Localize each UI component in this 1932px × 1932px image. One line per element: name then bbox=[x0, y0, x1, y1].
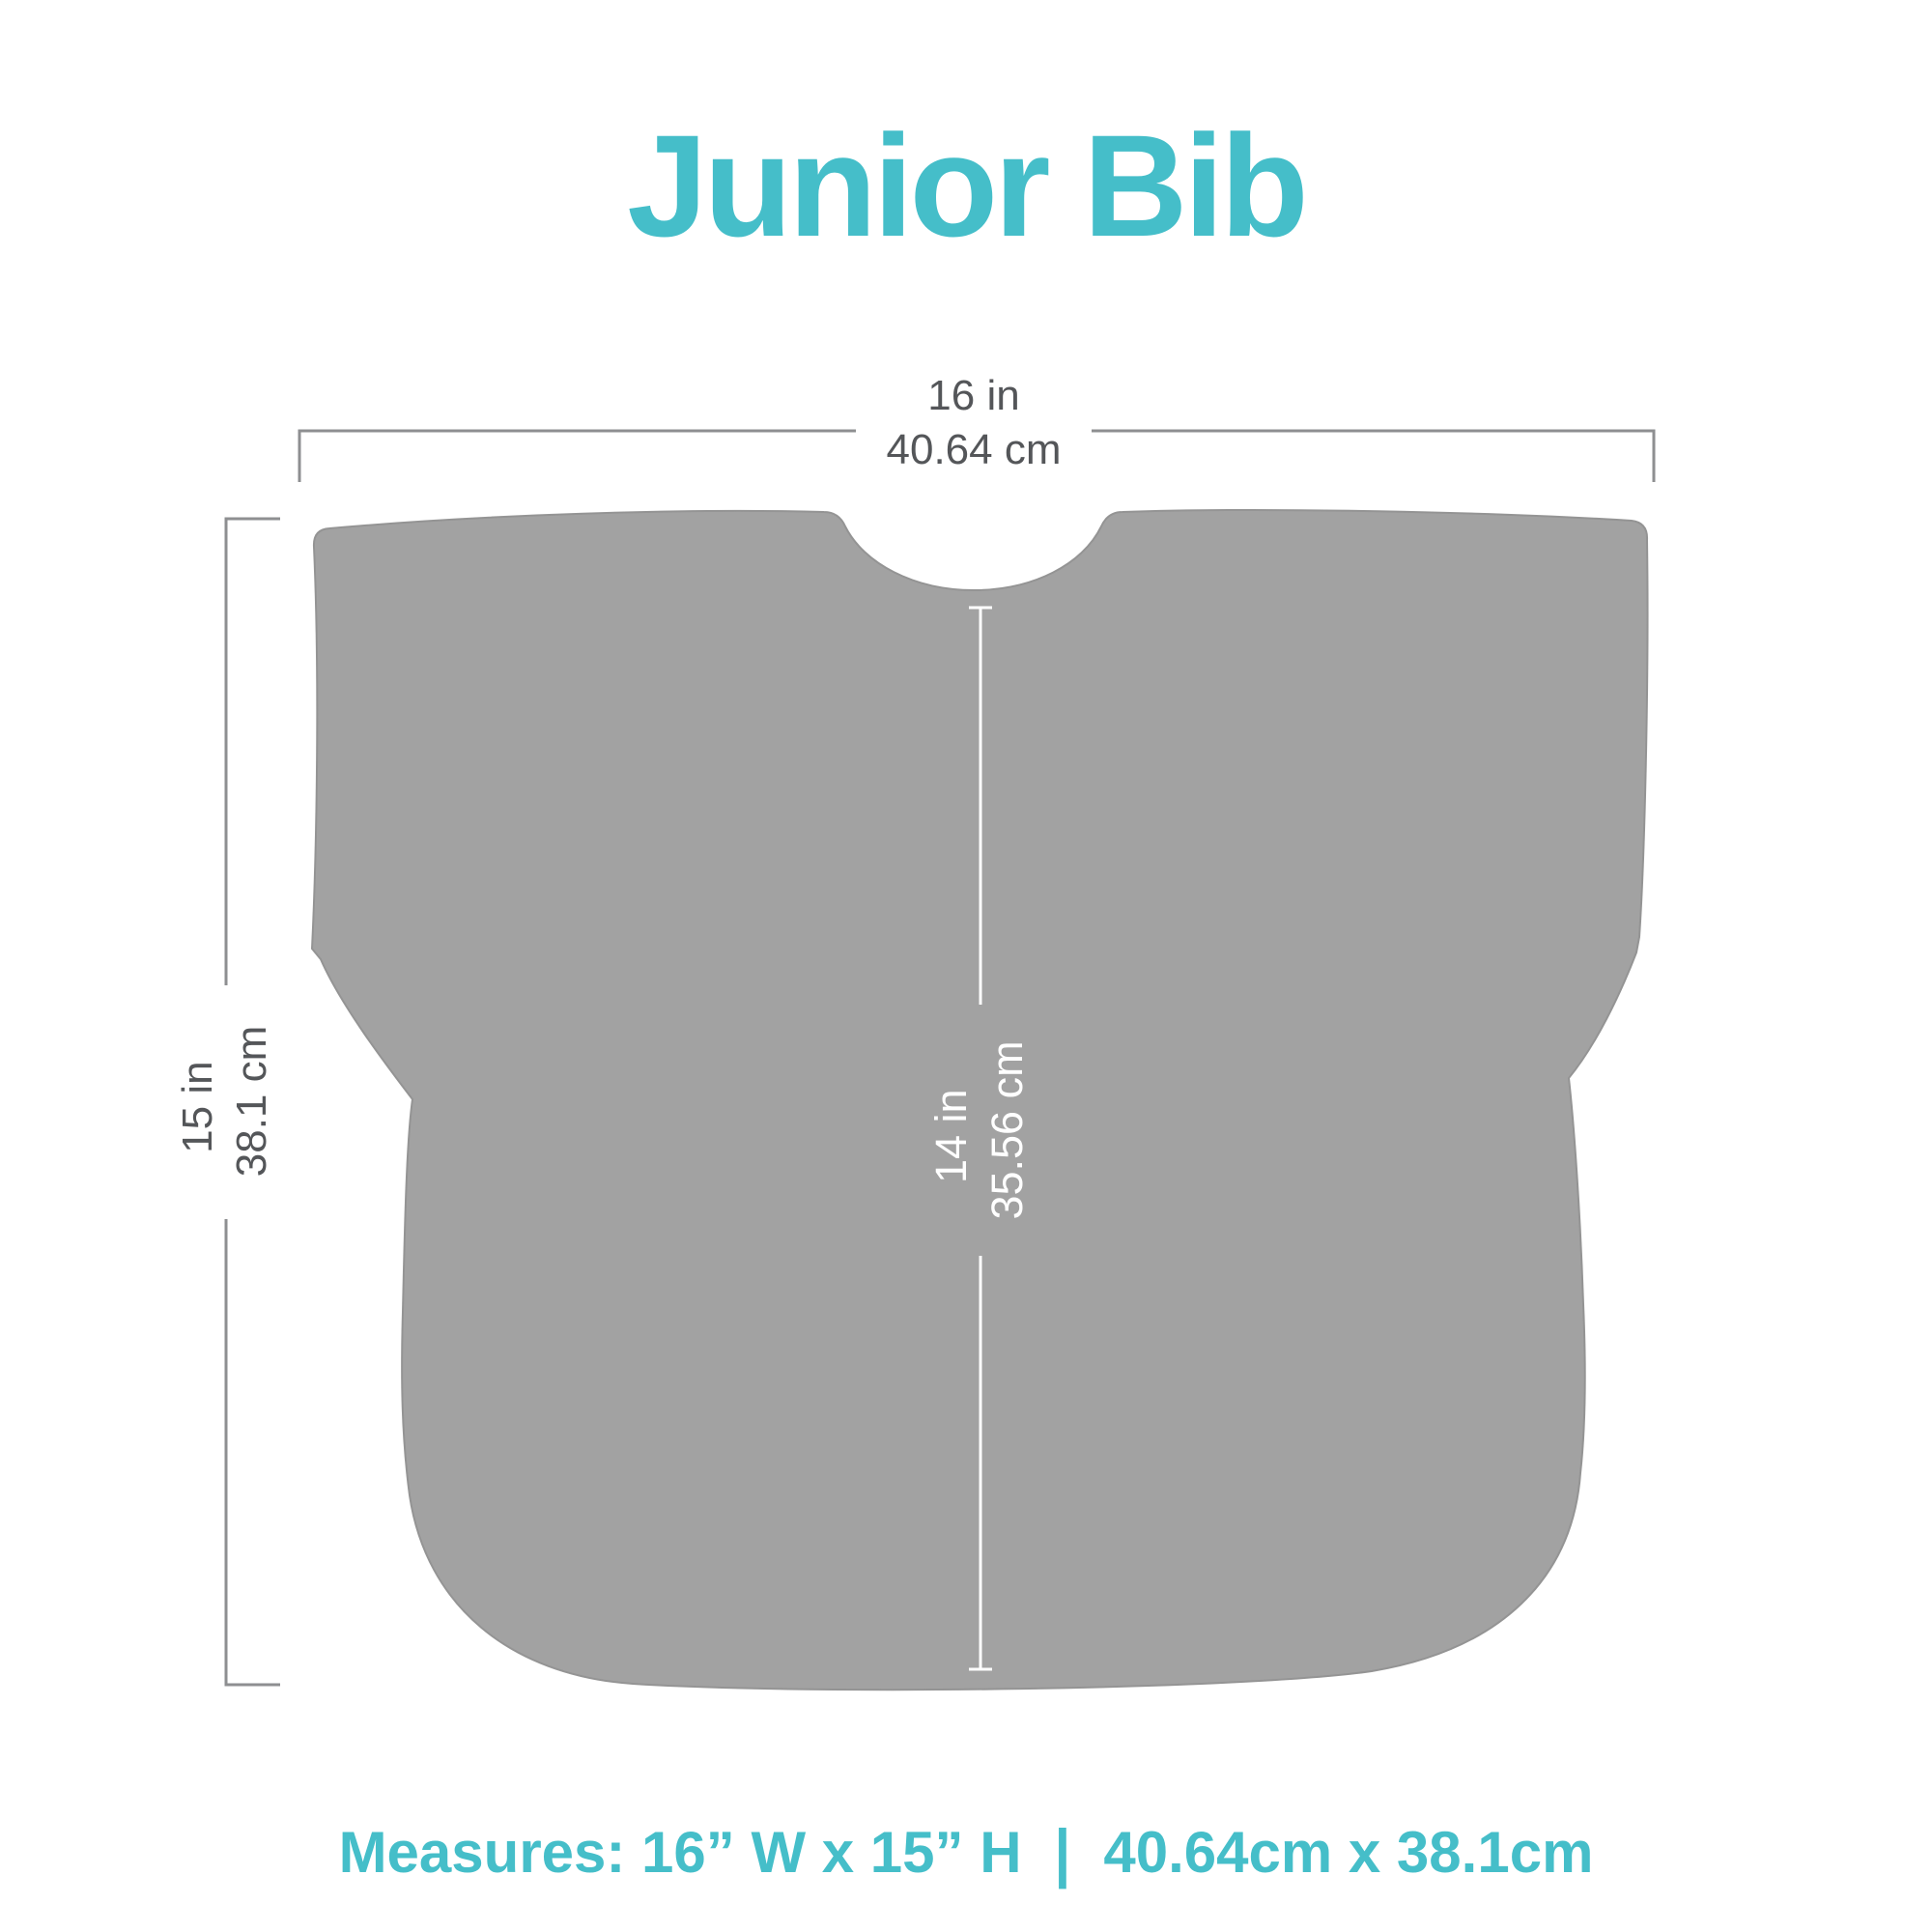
width-cm-label: 40.64 cm bbox=[887, 426, 1062, 473]
caption-imperial: Measures: 16” W x 15” H bbox=[339, 1824, 1022, 1882]
height-cm-label: 38.1 cm bbox=[228, 1026, 275, 1178]
height-dimension: 15 in 38.1 cm bbox=[174, 519, 280, 1685]
width-dimension-line-right bbox=[1092, 431, 1654, 482]
height-dimension-line-bottom bbox=[226, 1219, 280, 1685]
height-label: 15 in 38.1 cm bbox=[174, 1026, 275, 1178]
bib-diagram: 16 in 40.64 cm 15 in 38.1 cm 14 in 35.56… bbox=[0, 0, 1932, 1932]
caption-separator: | bbox=[1055, 1820, 1071, 1885]
inner-height-cm-label: 35.56 cm bbox=[982, 1040, 1032, 1219]
bib-dimension-diagram-page: Junior Bib 16 in 40.64 cm 15 in 38.1 cm bbox=[0, 0, 1932, 1932]
width-inches-label: 16 in bbox=[927, 372, 1019, 419]
height-dimension-line-top bbox=[226, 519, 280, 985]
measurements-caption: Measures: 16” W x 15” H | 40.64cm x 38.1… bbox=[0, 1824, 1932, 1882]
caption-metric: 40.64cm x 38.1cm bbox=[1103, 1824, 1593, 1882]
width-dimension-line-left bbox=[299, 431, 856, 482]
width-dimension: 16 in 40.64 cm bbox=[299, 372, 1654, 482]
inner-height-inches-label: 14 in bbox=[926, 1089, 976, 1183]
height-inches-label: 15 in bbox=[174, 1061, 221, 1152]
